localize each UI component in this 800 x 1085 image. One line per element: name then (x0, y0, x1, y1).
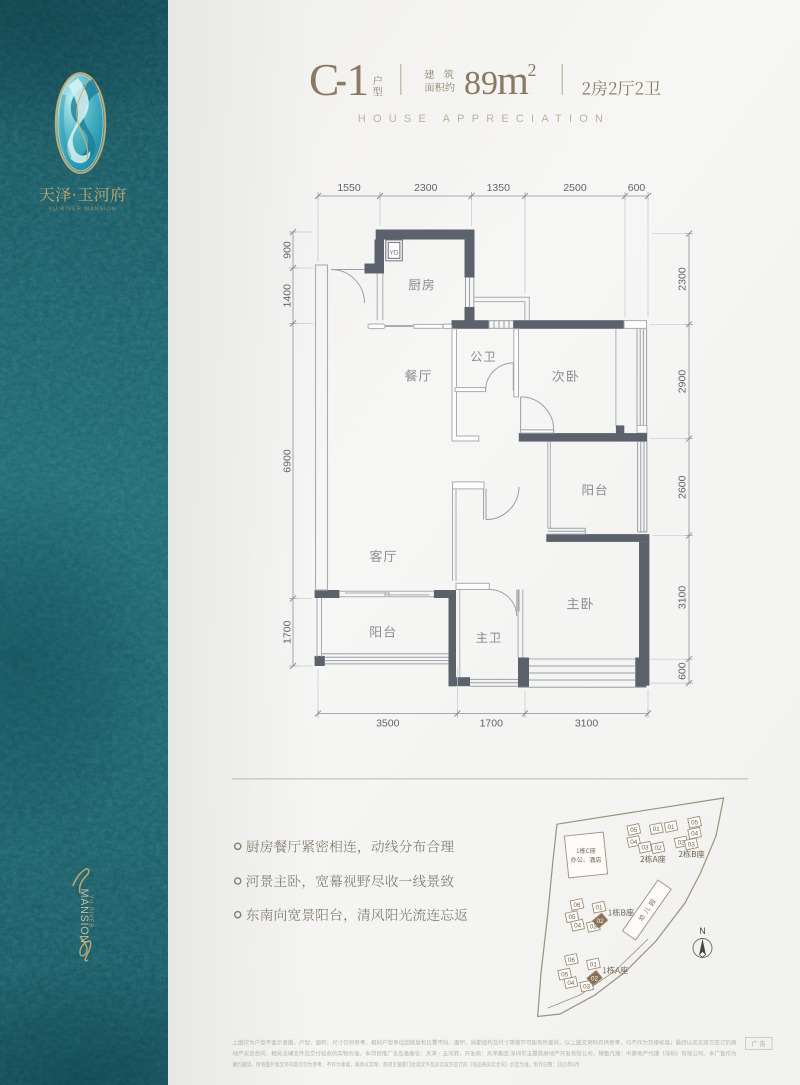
svg-text:04: 04 (630, 839, 638, 846)
svg-text:05: 05 (691, 820, 699, 827)
svg-text:89: 89 (464, 65, 498, 102)
svg-text:1: 1 (347, 54, 370, 105)
svg-text:YU RIVER MANSION: YU RIVER MANSION (48, 207, 116, 213)
svg-text:2: 2 (528, 60, 537, 80)
svg-text:3100: 3100 (677, 586, 689, 610)
svg-text:1400: 1400 (282, 284, 294, 308)
svg-text:05: 05 (568, 914, 576, 921)
svg-text:m: m (497, 57, 529, 103)
svg-text:01: 01 (590, 961, 598, 968)
svg-text:03: 03 (688, 841, 696, 848)
svg-text:01: 01 (595, 905, 603, 912)
svg-text:3100: 3100 (575, 718, 599, 730)
svg-text:01: 01 (667, 824, 675, 831)
svg-text:02: 02 (597, 918, 605, 925)
svg-text:1550: 1550 (337, 182, 361, 194)
svg-text:1350: 1350 (487, 182, 511, 194)
svg-text:YD: YD (389, 250, 398, 257)
svg-text:2600: 2600 (677, 475, 689, 499)
svg-text:04: 04 (691, 831, 699, 838)
svg-text:600: 600 (628, 182, 646, 194)
svg-text:2300: 2300 (414, 182, 438, 194)
svg-text:04: 04 (567, 980, 575, 987)
svg-text:02: 02 (654, 845, 662, 852)
svg-text:05: 05 (630, 827, 638, 834)
svg-text:04: 04 (574, 923, 582, 930)
svg-text:01: 01 (653, 826, 661, 833)
svg-text:1700: 1700 (282, 620, 294, 644)
svg-text:02: 02 (591, 975, 599, 982)
svg-text:03: 03 (583, 983, 591, 990)
svg-text:2300: 2300 (677, 267, 689, 291)
svg-text:2500: 2500 (563, 182, 587, 194)
svg-text:03: 03 (641, 845, 649, 852)
svg-text:600: 600 (677, 662, 689, 680)
svg-text:N: N (699, 926, 706, 936)
svg-text:06: 06 (573, 902, 581, 909)
svg-text:900: 900 (282, 241, 294, 259)
svg-text:1700: 1700 (480, 718, 504, 730)
svg-text:6900: 6900 (282, 449, 294, 473)
svg-text:C: C (309, 54, 339, 105)
svg-text:2900: 2900 (677, 370, 689, 394)
svg-text:06: 06 (568, 957, 576, 964)
svg-text:05: 05 (561, 972, 569, 979)
svg-text:3500: 3500 (376, 718, 400, 730)
svg-text:YU RIVER: YU RIVER (88, 895, 94, 928)
svg-text:HOUSE APPRECIATION: HOUSE APPRECIATION (358, 113, 610, 125)
